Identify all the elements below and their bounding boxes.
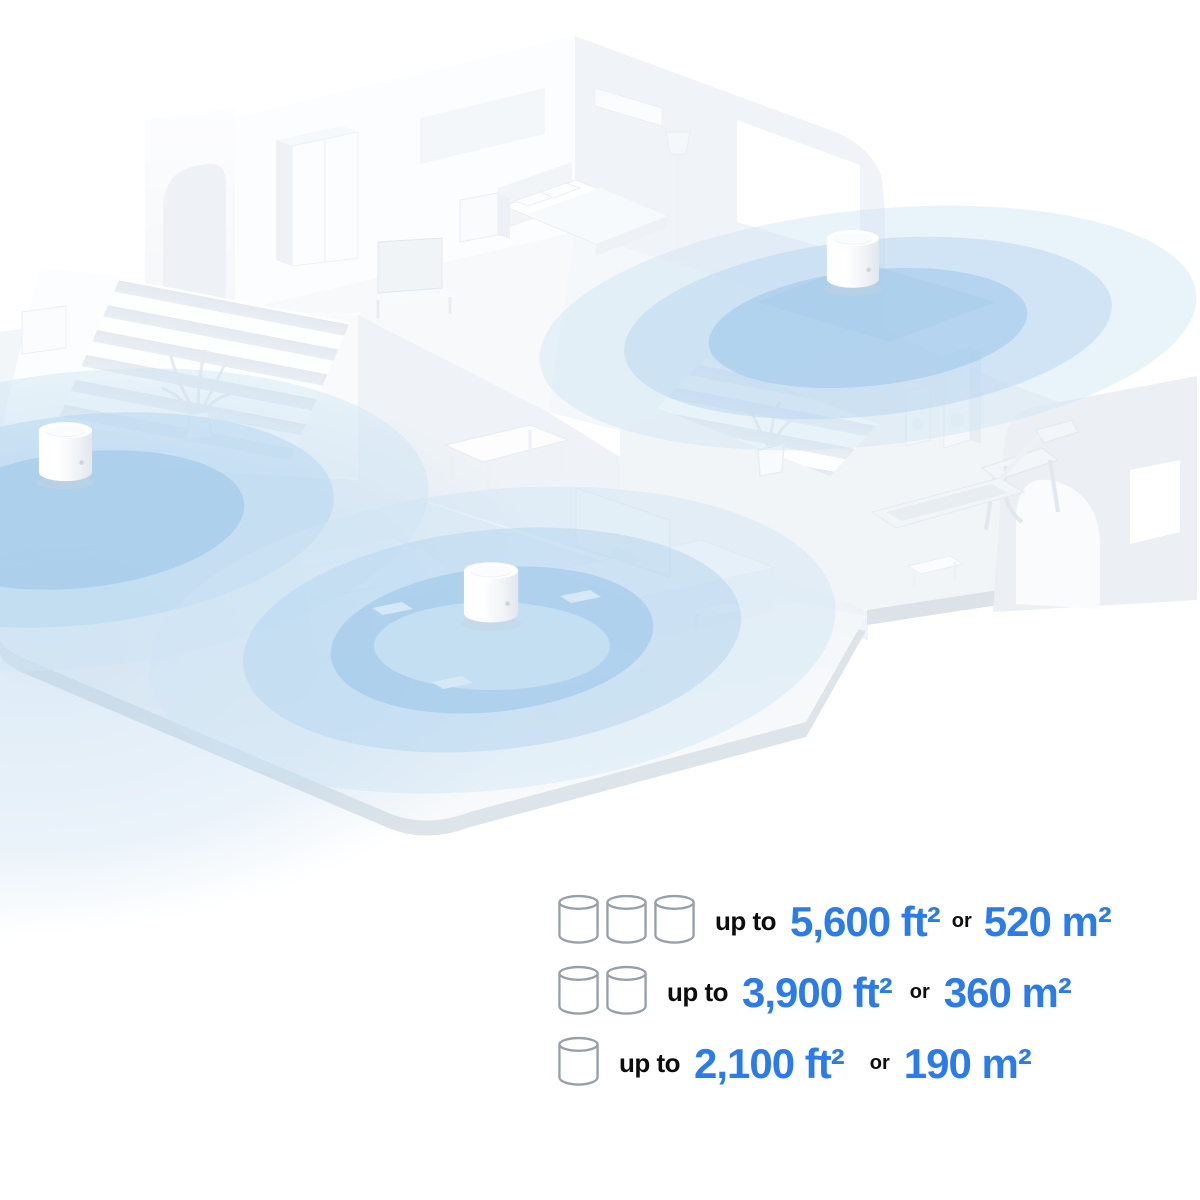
coverage-row-1-pack: up to 2,100 ft² or 190 m² (556, 1028, 1111, 1099)
deco-unit-icon (556, 964, 601, 1021)
coverage-row-2-pack: up to 3,900 ft² or 360 m² (556, 957, 1111, 1028)
wardrobe (276, 126, 358, 266)
deco-unit-icon (604, 964, 649, 1021)
hall-cabinet (22, 306, 66, 354)
deco-unit-left (36, 422, 95, 489)
deco-unit-icon (556, 1035, 601, 1092)
imperial-area-value: 5,600 ft² (790, 898, 940, 946)
coverage-legend: up to 5,600 ft² or 520 m² up to 3,900 ft… (556, 886, 1111, 1099)
unit-count-icons (556, 1035, 604, 1092)
coverage-row-3-pack: up to 5,600 ft² or 520 m² (556, 886, 1111, 957)
metric-area-value: 520 m² (984, 898, 1111, 946)
unit-count-icons (556, 893, 700, 950)
conjunction-label: or (870, 1052, 890, 1075)
unit-count-icons (556, 964, 652, 1021)
prefix-label: up to (619, 1048, 680, 1079)
metric-area-value: 190 m² (904, 1040, 1031, 1088)
conjunction-label: or (910, 981, 930, 1004)
deco-unit-upper-right (824, 230, 882, 296)
imperial-area-value: 3,900 ft² (742, 969, 892, 1017)
prefix-label: up to (667, 977, 728, 1008)
metric-area-value: 360 m² (944, 969, 1071, 1017)
product-illustration: up to 5,600 ft² or 520 m² up to 3,900 ft… (0, 0, 1200, 1200)
deco-unit-icon (652, 893, 697, 950)
conjunction-label: or (952, 910, 972, 933)
nightstand (460, 193, 510, 242)
prefix-label: up to (715, 906, 776, 937)
deco-unit-icon (556, 893, 601, 950)
deco-unit-icon (604, 893, 649, 950)
deco-unit-center (461, 562, 521, 630)
imperial-area-value: 2,100 ft² (694, 1040, 844, 1088)
